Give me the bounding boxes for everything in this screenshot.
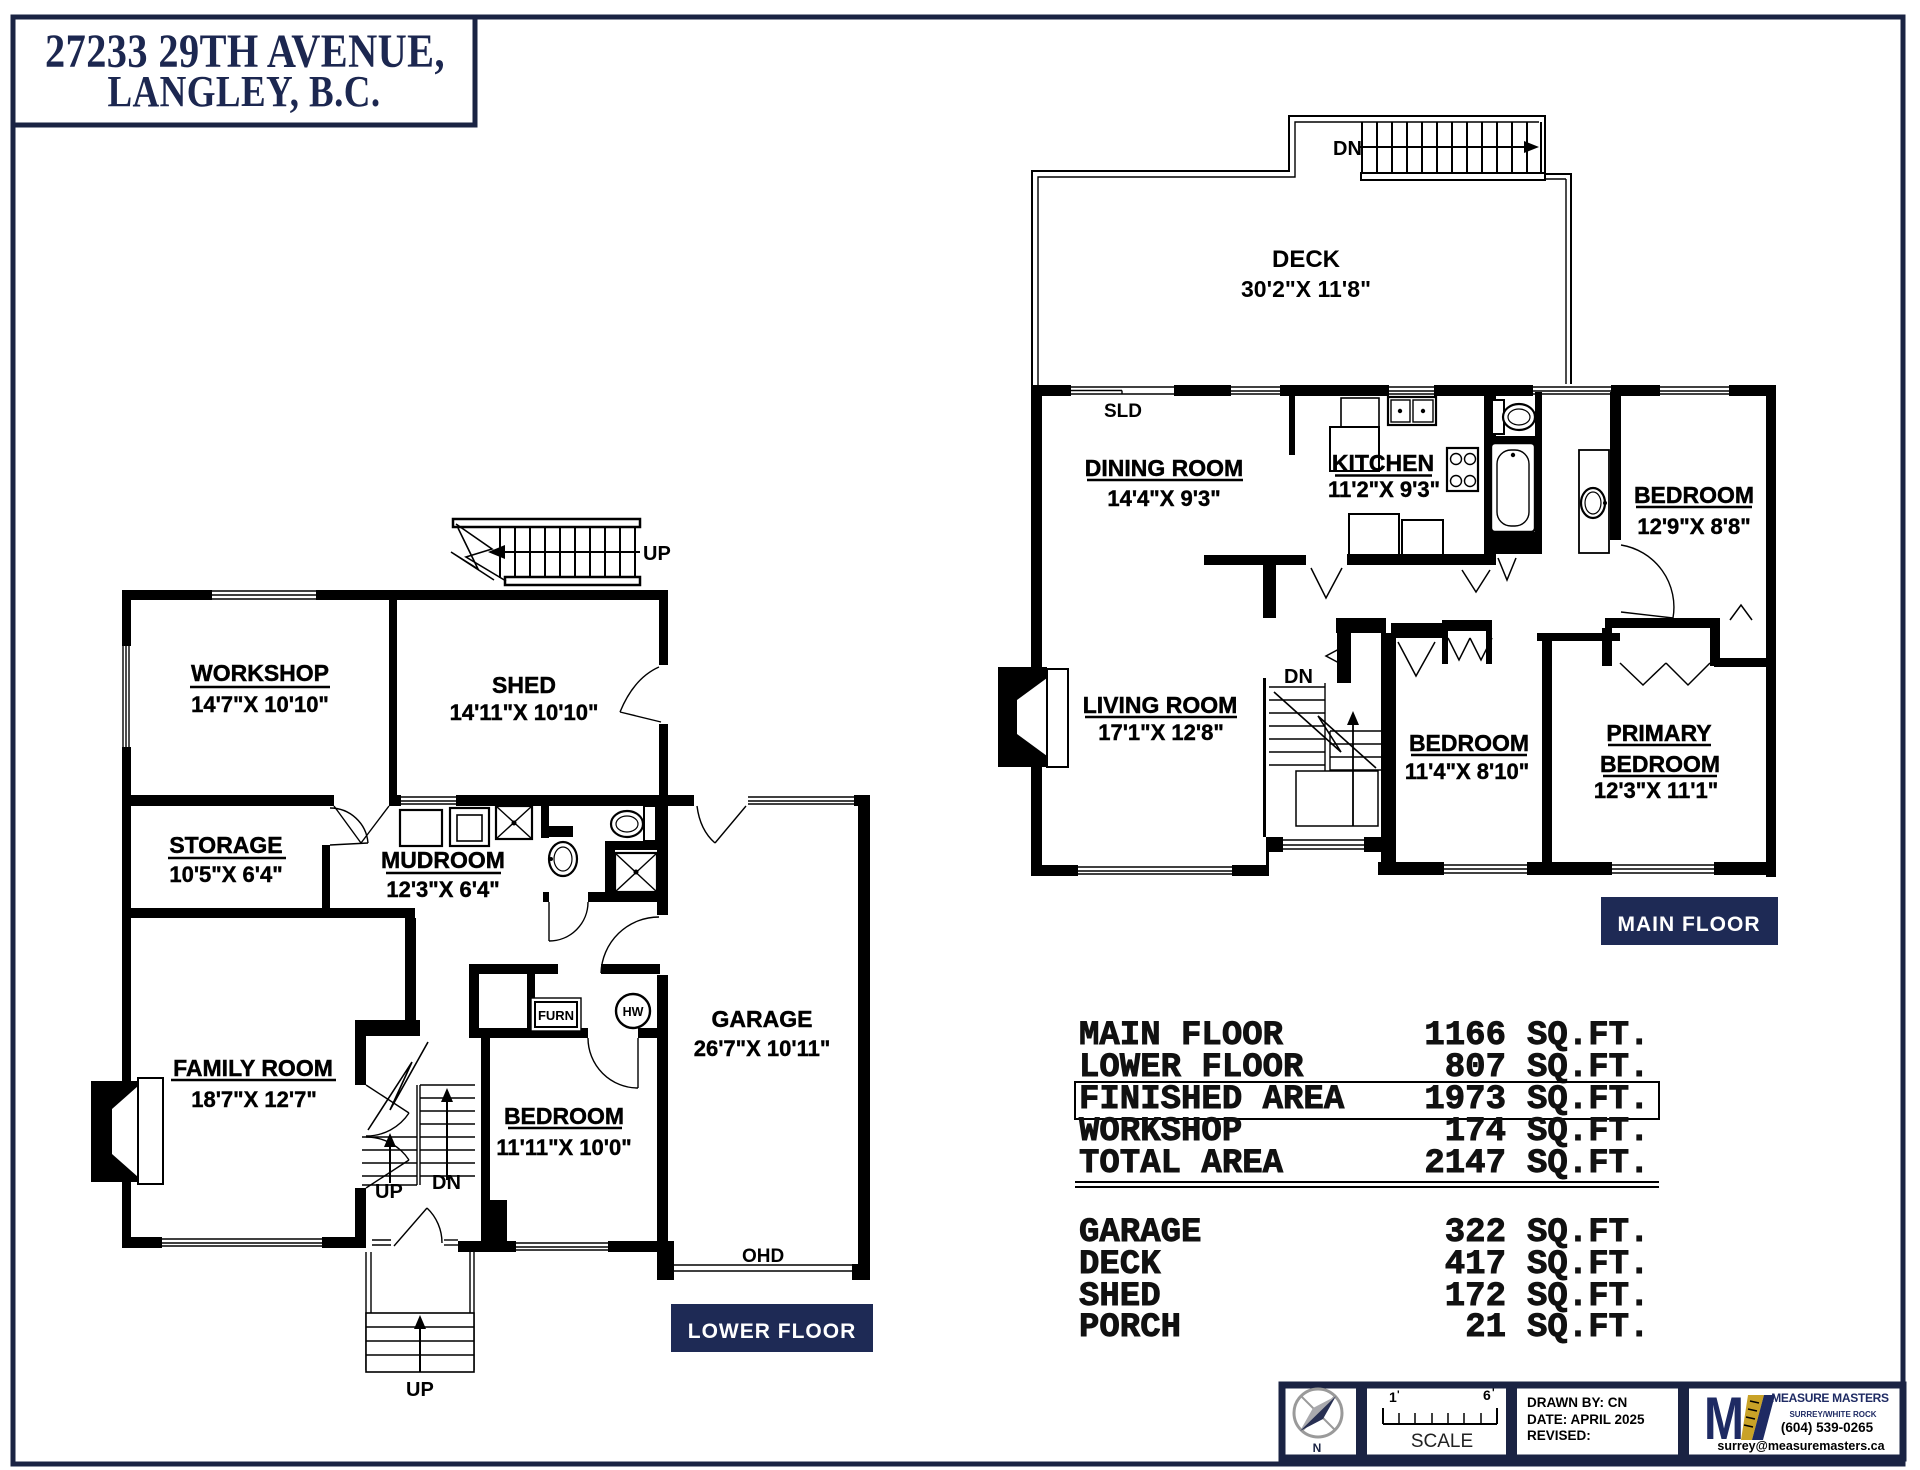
svg-text:MAIN FLOOR: MAIN FLOOR	[1618, 913, 1761, 936]
svg-text:STORAGE: STORAGE	[169, 832, 282, 858]
svg-text:LOWER FLOOR: LOWER FLOOR	[688, 1320, 856, 1343]
svg-text:12'9"X 8'8": 12'9"X 8'8"	[1637, 514, 1750, 539]
svg-text:10'5"X 6'4": 10'5"X 6'4"	[169, 862, 282, 887]
svg-text:26'7"X 10'11": 26'7"X 10'11"	[694, 1036, 831, 1061]
svg-text:12'3"X 11'1": 12'3"X 11'1"	[1594, 778, 1718, 803]
svg-text:PRIMARY: PRIMARY	[1606, 720, 1711, 746]
svg-text:30'2"X 11'8": 30'2"X 11'8"	[1241, 276, 1371, 302]
svg-text:11'2"X 9'3": 11'2"X 9'3"	[1328, 477, 1440, 502]
svg-text:2147: 2147	[1424, 1145, 1506, 1183]
svg-text:BEDROOM: BEDROOM	[1409, 730, 1529, 756]
svg-text:DRAWN BY: CN: DRAWN BY: CN	[1527, 1395, 1627, 1410]
svg-text:KITCHEN: KITCHEN	[1332, 450, 1434, 476]
svg-text:DN: DN	[1333, 138, 1362, 160]
svg-text:UP: UP	[375, 1181, 403, 1203]
svg-text:SQ.FT.: SQ.FT.	[1527, 1309, 1649, 1347]
svg-text:12'3"X 6'4": 12'3"X 6'4"	[386, 877, 499, 902]
svg-text:FAMILY ROOM: FAMILY ROOM	[173, 1055, 333, 1081]
svg-text:1: 1	[1389, 1389, 1397, 1405]
svg-text:DINING ROOM: DINING ROOM	[1085, 455, 1243, 481]
svg-text:PORCH: PORCH	[1079, 1309, 1181, 1347]
svg-text:SLD: SLD	[1104, 401, 1142, 422]
svg-text:MUDROOM: MUDROOM	[381, 847, 505, 873]
svg-text:': '	[1397, 1389, 1400, 1401]
svg-text:LANGLEY, B.C.: LANGLEY, B.C.	[107, 67, 380, 116]
svg-text:GARAGE: GARAGE	[712, 1006, 813, 1032]
svg-text:UP: UP	[643, 543, 671, 565]
svg-text:SQ.FT.: SQ.FT.	[1527, 1145, 1649, 1183]
svg-text:11'11"X 10'0": 11'11"X 10'0"	[496, 1135, 631, 1160]
svg-text:HW: HW	[623, 1005, 644, 1019]
svg-text:surrey@measuremasters.ca: surrey@measuremasters.ca	[1717, 1439, 1885, 1453]
svg-text:N: N	[1313, 1441, 1322, 1455]
svg-text:14'7"X 10'10": 14'7"X 10'10"	[191, 692, 329, 717]
svg-text:11'4"X 8'10": 11'4"X 8'10"	[1405, 759, 1529, 784]
svg-text:': '	[1492, 1387, 1495, 1399]
svg-text:DATE: APRIL 2025: DATE: APRIL 2025	[1527, 1412, 1645, 1427]
svg-text:UP: UP	[406, 1379, 434, 1401]
svg-text:MEASURE MASTERS: MEASURE MASTERS	[1771, 1391, 1889, 1405]
svg-text:SURREY/WHITE ROCK: SURREY/WHITE ROCK	[1789, 1410, 1876, 1419]
svg-text:DN: DN	[432, 1172, 461, 1194]
svg-text:17'1"X 12'8": 17'1"X 12'8"	[1098, 720, 1224, 745]
svg-text:DN: DN	[1284, 666, 1313, 688]
svg-text:18'7"X 12'7": 18'7"X 12'7"	[191, 1087, 317, 1112]
svg-text:LIVING ROOM: LIVING ROOM	[1083, 692, 1238, 718]
svg-text:OHD: OHD	[742, 1246, 784, 1267]
svg-text:SHED: SHED	[492, 672, 556, 698]
svg-text:TOTAL AREA: TOTAL AREA	[1079, 1145, 1284, 1183]
svg-text:(604) 539-0265: (604) 539-0265	[1781, 1420, 1874, 1435]
svg-text:BEDROOM: BEDROOM	[1600, 751, 1720, 777]
svg-text:14'11"X 10'10": 14'11"X 10'10"	[450, 700, 599, 725]
svg-text:SCALE: SCALE	[1411, 1431, 1473, 1452]
svg-text:FURN: FURN	[538, 1008, 574, 1023]
svg-text:WORKSHOP: WORKSHOP	[191, 660, 329, 686]
svg-text:21: 21	[1465, 1309, 1506, 1347]
svg-text:14'4"X 9'3": 14'4"X 9'3"	[1107, 486, 1220, 511]
svg-text:BEDROOM: BEDROOM	[1634, 482, 1754, 508]
svg-text:6: 6	[1483, 1387, 1491, 1403]
svg-text:BEDROOM: BEDROOM	[504, 1103, 624, 1129]
svg-text:REVISED:: REVISED:	[1527, 1428, 1591, 1443]
svg-text:DECK: DECK	[1272, 246, 1341, 273]
